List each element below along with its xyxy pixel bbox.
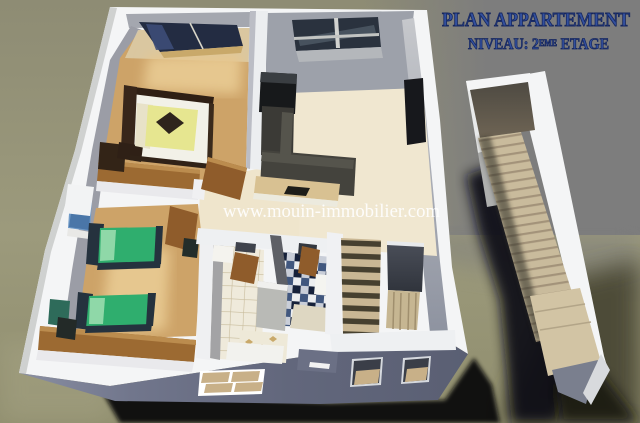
svg-text:PLAN APPARTEMENT: PLAN APPARTEMENT xyxy=(442,9,631,31)
svg-text:www.mouin-immobilier.com: www.mouin-immobilier.com xyxy=(223,201,440,222)
svg-text:NIVEAU: 2EME ETAGE: NIVEAU: 2EME ETAGE xyxy=(468,36,609,53)
